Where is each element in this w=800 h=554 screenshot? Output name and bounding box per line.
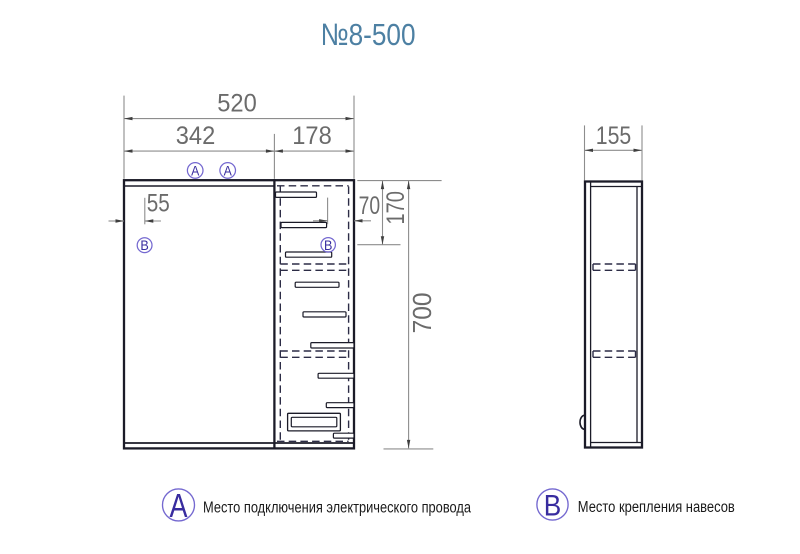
svg-text:520: 520: [217, 89, 257, 117]
svg-text:A: A: [170, 487, 188, 524]
svg-text:70: 70: [359, 192, 381, 220]
svg-text:Место подключения электрическо: Место подключения электрического провода: [203, 500, 471, 517]
svg-text:Место крепления навесов: Место крепления навесов: [578, 499, 735, 516]
svg-text:170: 170: [382, 191, 410, 225]
svg-text:B: B: [140, 238, 148, 253]
svg-text:№8-500: №8-500: [321, 17, 416, 52]
svg-text:55: 55: [147, 190, 170, 218]
svg-text:B: B: [324, 238, 332, 253]
svg-text:155: 155: [596, 122, 632, 150]
svg-text:B: B: [544, 490, 562, 523]
svg-text:178: 178: [292, 122, 332, 150]
svg-text:A: A: [224, 164, 233, 180]
svg-text:A: A: [191, 164, 200, 180]
svg-text:342: 342: [176, 122, 216, 150]
svg-text:700: 700: [407, 292, 437, 333]
